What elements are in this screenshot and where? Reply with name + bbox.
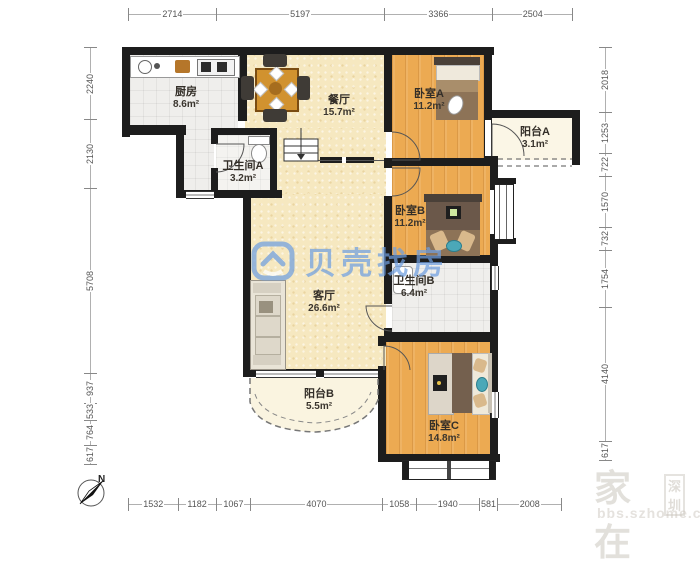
door-balcony-a bbox=[492, 124, 524, 156]
beike-shell-logo-icon bbox=[250, 240, 296, 282]
entry-steps-icon bbox=[284, 128, 318, 161]
balcony-a-railing bbox=[498, 159, 572, 166]
floor-plan: 厨房8.6m² 餐厅15.7m² 卧室A11.2m² 阳台A3.1m² 卫生间A… bbox=[0, 0, 700, 525]
compass-north-label: N bbox=[98, 474, 105, 485]
door-bath-b bbox=[366, 306, 392, 331]
door-bedroom-a bbox=[392, 132, 420, 160]
door-bath-a bbox=[216, 144, 244, 172]
beike-watermark-text: 贝壳找房 bbox=[305, 238, 449, 283]
balcony-b-outline bbox=[250, 378, 378, 432]
beike-watermark: 贝壳找房 bbox=[250, 238, 449, 283]
door-bedroom-b bbox=[392, 168, 420, 196]
corner-watermark-site: bbs.szhome.com bbox=[597, 505, 700, 521]
door-bedroom-c bbox=[384, 346, 410, 370]
